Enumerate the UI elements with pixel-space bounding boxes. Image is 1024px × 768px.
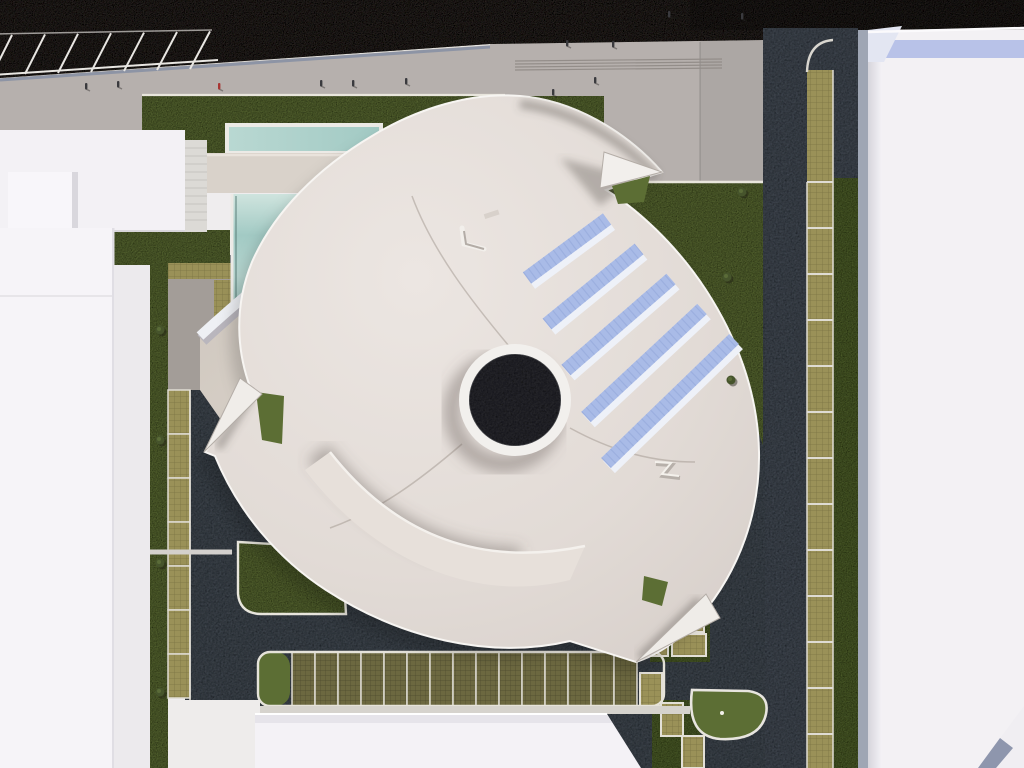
shrub-highlight: [724, 274, 728, 278]
east-building-curb: [858, 30, 868, 768]
planter-cell: [168, 390, 190, 434]
lawn-band-west: [114, 230, 230, 265]
parking-stall: [453, 652, 476, 706]
shrub-highlight: [157, 689, 161, 693]
island-lamp: [720, 711, 724, 715]
lawn-strip-east: [833, 178, 858, 768]
teardrop-lawn: [691, 690, 767, 739]
east-building: [858, 26, 1024, 768]
west-planter-cells: [168, 390, 190, 700]
east-building-west-edge: [868, 30, 882, 768]
asphalt-dark-corner: [690, 0, 1024, 30]
shrub-highlight: [157, 327, 161, 331]
pedestrian: [352, 80, 354, 87]
pedestrian: [552, 89, 554, 96]
parking-stall: [522, 652, 545, 706]
south-building: [255, 714, 641, 768]
parking-stall: [499, 652, 522, 706]
stall-column-surface: [807, 70, 833, 768]
east-building-roof: [868, 30, 1024, 768]
pedestrian: [594, 77, 596, 84]
planter-cell: [168, 522, 190, 566]
pedestrian: [218, 83, 220, 90]
shrub-highlight: [728, 377, 732, 381]
west-building-louvered-roof: [185, 140, 207, 232]
planter-cell: [168, 654, 190, 698]
west-apron: [114, 265, 150, 768]
shrub-highlight: [739, 189, 743, 193]
pedestrian: [405, 78, 407, 85]
south-building-bevel: [255, 714, 612, 723]
pedestrian: [117, 81, 119, 88]
planter-cell: [168, 434, 190, 478]
pedestrian: [612, 41, 614, 48]
parking-stall: [476, 652, 499, 706]
road-surface-upper-east: [833, 28, 858, 178]
parking-stall: [384, 652, 407, 706]
stall-row-green-end: [258, 652, 290, 706]
stall-row-curb: [250, 706, 690, 714]
parking-stall: [361, 652, 384, 706]
east-stall-column: [807, 40, 833, 768]
parking-stall: [292, 652, 315, 706]
site-plan-render: [0, 0, 1024, 768]
pedestrian: [741, 13, 743, 20]
pedestrian: [85, 83, 87, 90]
west-building-main-slab: [0, 228, 114, 768]
pedestrian: [668, 11, 670, 18]
planter-cell: [168, 478, 190, 522]
plaza-seam-shade: [700, 40, 763, 183]
shrub-highlight: [157, 437, 161, 441]
planter-cell: [168, 566, 190, 610]
parking-stall: [315, 652, 338, 706]
parking-stall: [545, 652, 568, 706]
stepped-stall: [640, 673, 662, 706]
pedestrian: [320, 80, 322, 87]
pedestrian: [566, 40, 568, 47]
stepped-stall: [682, 736, 704, 768]
shrub-highlight: [157, 560, 161, 564]
court-paver-band: [168, 263, 236, 279]
teardrop-island: [691, 690, 767, 739]
southwest-apron: [168, 700, 260, 768]
parking-stall: [407, 652, 430, 706]
lawn-strip-west: [150, 230, 168, 768]
aerial-render-stage: [0, 0, 1024, 768]
parking-stall: [338, 652, 361, 706]
planter-cell: [168, 610, 190, 654]
parking-stall: [430, 652, 453, 706]
